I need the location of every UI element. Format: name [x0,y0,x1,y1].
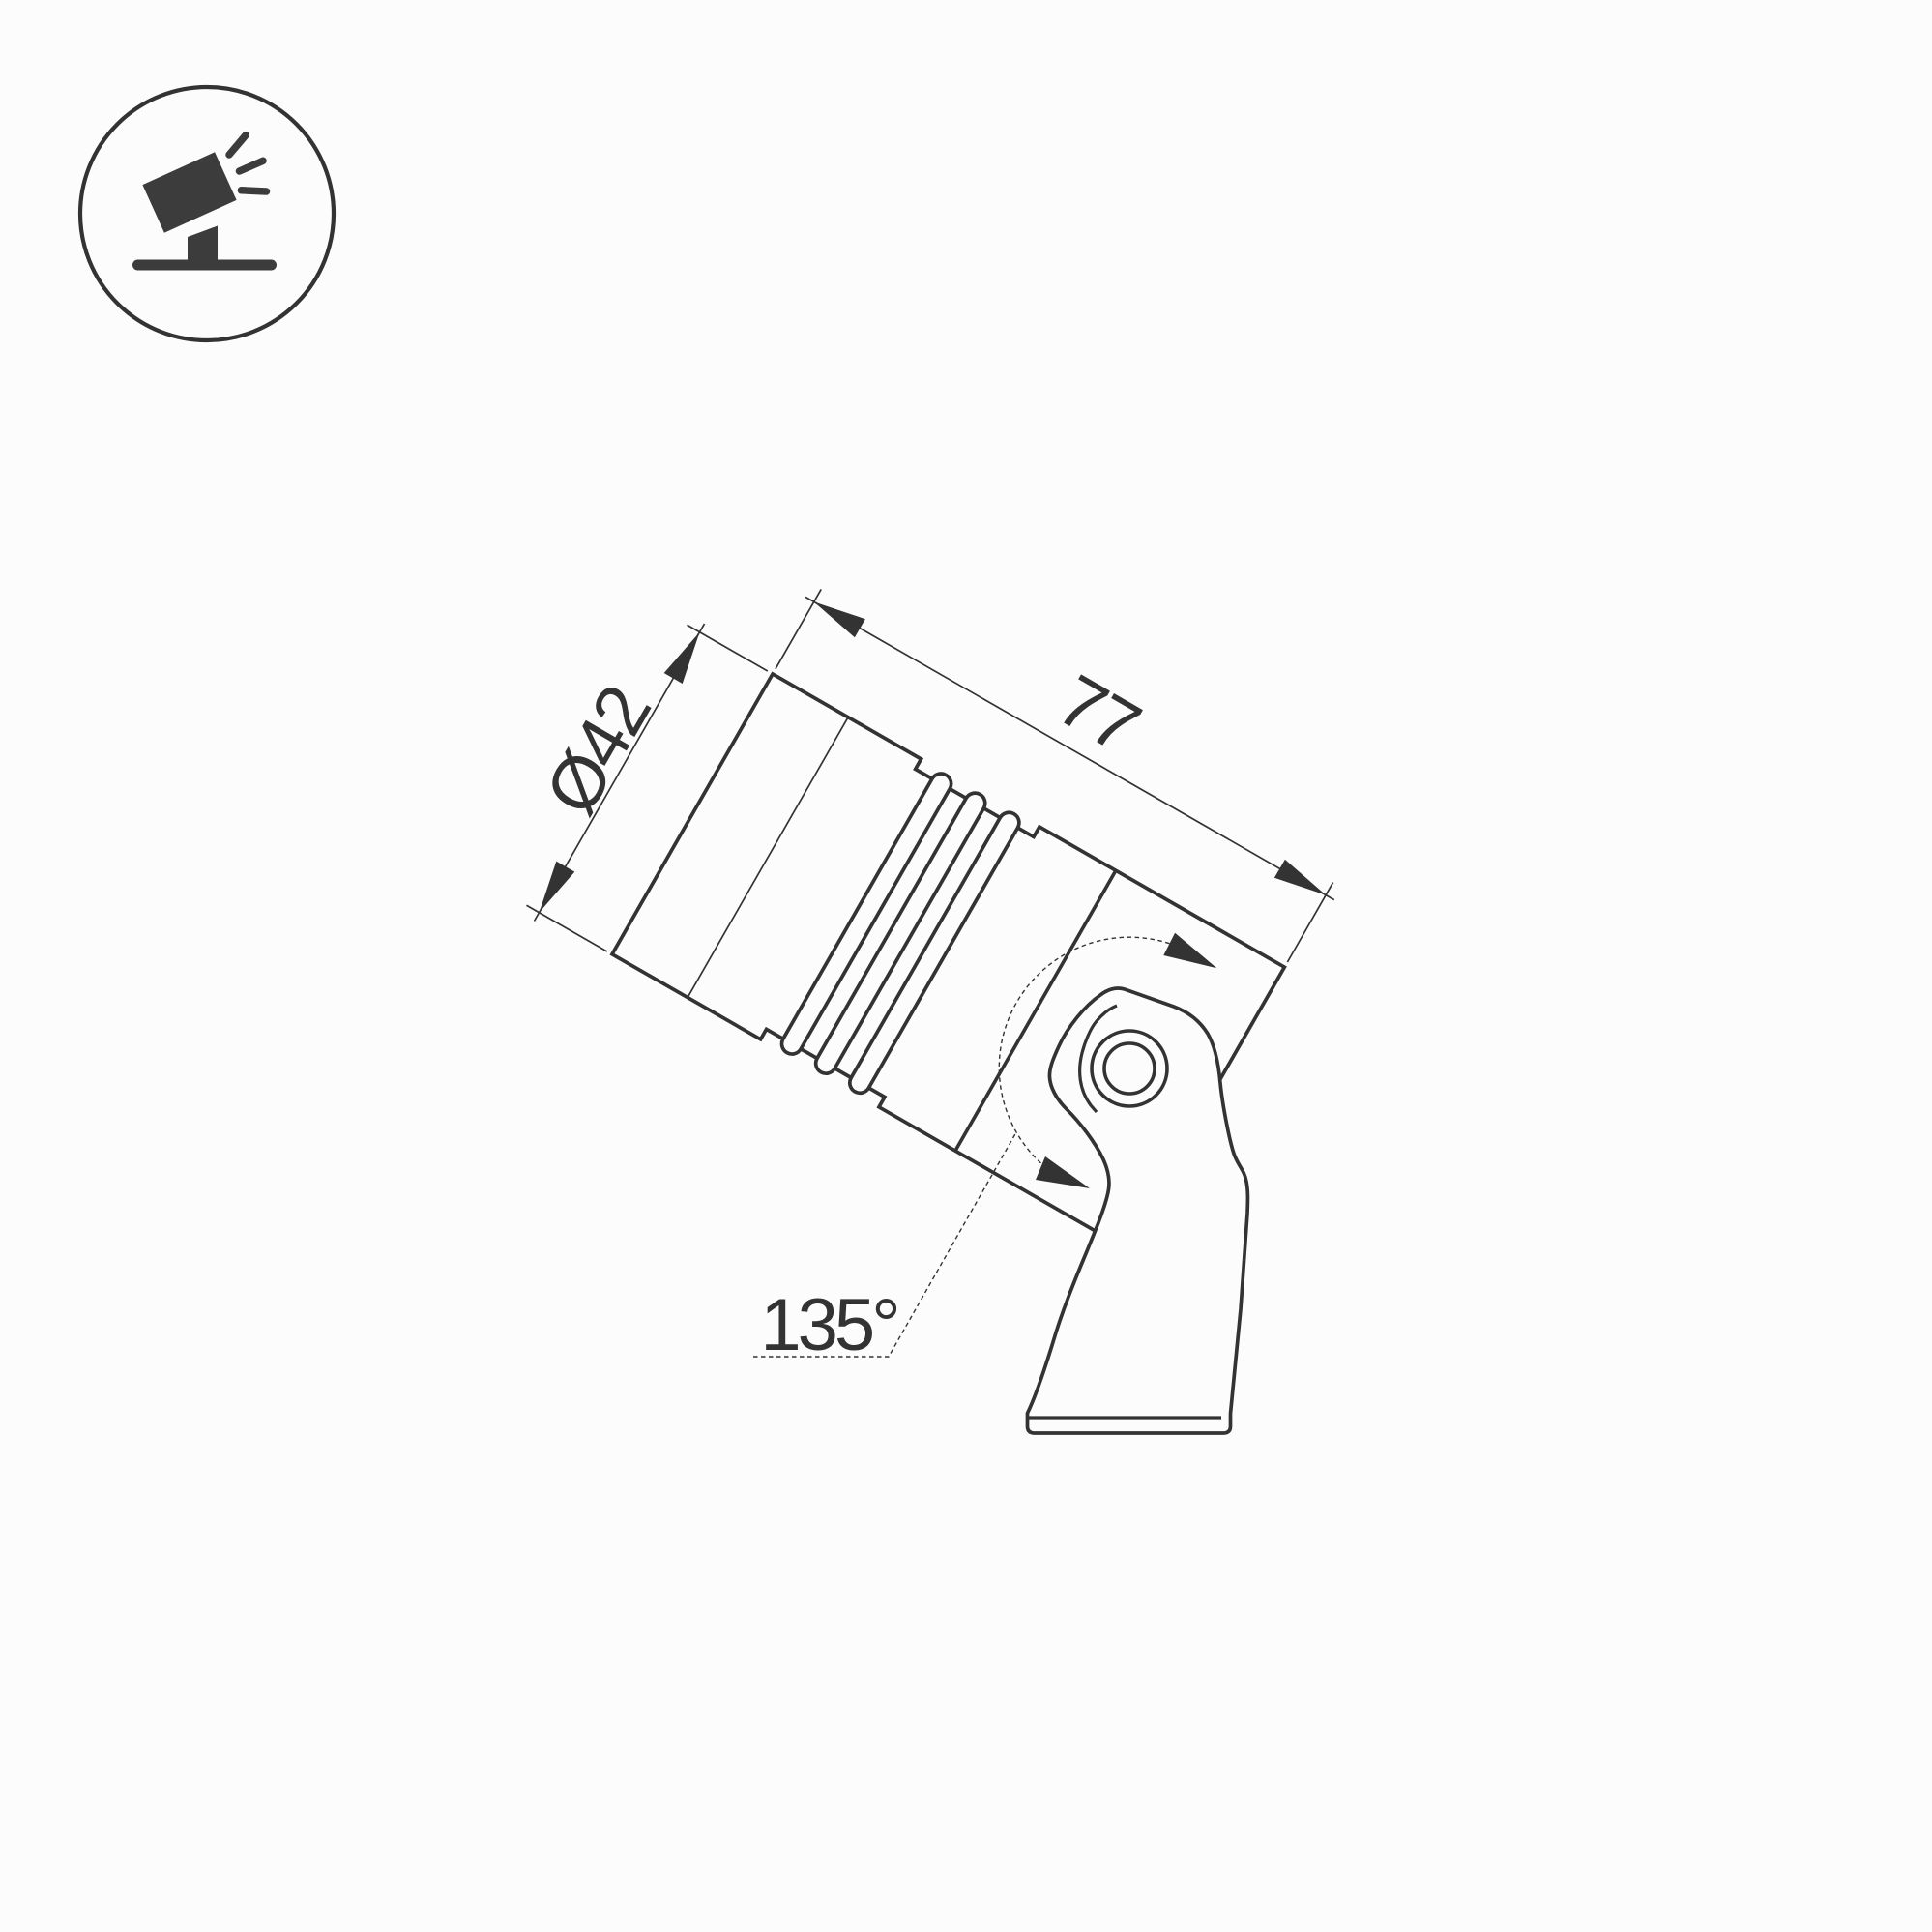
svg-text:135°: 135° [760,1284,896,1366]
